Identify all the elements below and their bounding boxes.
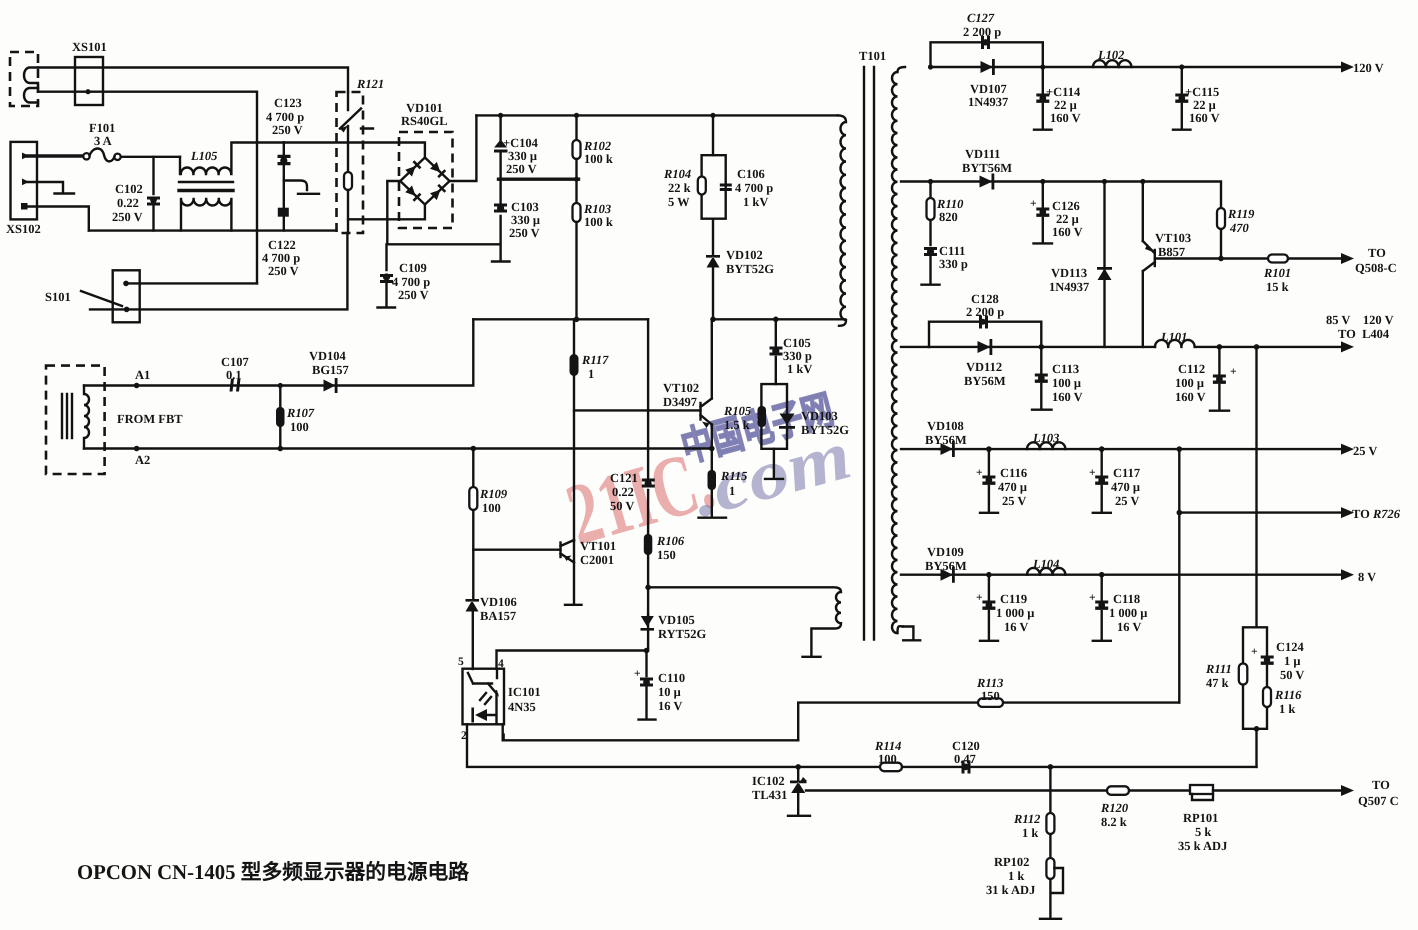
svg-text:1N4937: 1N4937 [1049,280,1089,294]
svg-text:C109: C109 [399,261,427,275]
svg-text:XS102: XS102 [6,222,41,236]
svg-text:8 V: 8 V [1358,570,1376,584]
svg-text:C106: C106 [737,167,765,181]
svg-text:C119: C119 [1000,592,1027,606]
svg-text:VD108: VD108 [927,419,964,433]
svg-text:0.47: 0.47 [954,752,976,766]
svg-text:C127: C127 [967,11,995,25]
svg-text:1 k: 1 k [1022,826,1038,840]
svg-text:+: + [1089,467,1096,479]
svg-text:1 μ: 1 μ [1284,654,1300,668]
svg-text:470 μ: 470 μ [1111,480,1140,494]
svg-text:VT101: VT101 [580,539,616,553]
svg-text:VD106: VD106 [480,595,517,609]
svg-text:VD111: VD111 [965,147,1000,161]
svg-text:R103: R103 [583,202,611,216]
svg-text:BYT56M: BYT56M [962,161,1012,175]
svg-text:330 p: 330 p [783,349,812,363]
svg-text:31 k ADJ: 31 k ADJ [986,883,1035,897]
svg-text:Q508-C: Q508-C [1355,261,1397,275]
svg-text:VD102: VD102 [726,248,763,262]
svg-text:L102: L102 [1097,48,1124,62]
svg-text:250 V: 250 V [272,123,303,137]
svg-text:50 V: 50 V [610,499,634,513]
svg-text:3 A: 3 A [94,134,112,148]
svg-text:D3497: D3497 [663,395,697,409]
svg-text:150: 150 [657,548,676,562]
svg-text:VD113: VD113 [1051,266,1087,280]
svg-text:C103: C103 [511,200,539,214]
svg-text:250 V: 250 V [268,264,299,278]
svg-text:BA157: BA157 [480,609,516,623]
svg-text:R119: R119 [1227,207,1255,221]
svg-text:VD109: VD109 [927,545,964,559]
svg-text:R101: R101 [1263,266,1291,280]
svg-text:4 700 p: 4 700 p [266,110,304,124]
svg-text:1 k: 1 k [1008,869,1024,883]
svg-text:820: 820 [939,210,958,224]
svg-text:1 000 μ: 1 000 μ [1109,606,1147,620]
svg-text:TO R726: TO R726 [1352,507,1401,521]
svg-text:OPCON CN-1405 型多频显示器的电源电路: OPCON CN-1405 型多频显示器的电源电路 [77,860,470,884]
svg-text:160 V: 160 V [1050,111,1081,125]
svg-text:R106: R106 [656,534,685,548]
svg-text:R102: R102 [583,139,611,153]
svg-text:R116: R116 [1274,688,1302,702]
svg-text:R110: R110 [936,197,964,211]
svg-text:+C114: +C114 [1046,85,1081,99]
svg-text:+C115: +C115 [1185,85,1219,99]
svg-text:C110: C110 [658,671,685,685]
svg-text:VT103: VT103 [1155,231,1191,245]
svg-text:A1: A1 [135,368,150,382]
svg-text:250 V: 250 V [509,226,540,240]
svg-text:35 k ADJ: 35 k ADJ [1178,839,1227,853]
svg-text:RP102: RP102 [994,855,1029,869]
svg-text:C113: C113 [1052,362,1079,376]
svg-text:C116: C116 [1000,466,1027,480]
svg-text:0.22: 0.22 [612,485,634,499]
svg-text:VD112: VD112 [966,360,1002,374]
svg-text:RYT52G: RYT52G [658,627,706,641]
svg-text:VD105: VD105 [658,613,695,627]
svg-text:250 V: 250 V [506,162,537,176]
svg-text:4 700 p: 4 700 p [392,275,430,289]
svg-text:15 k: 15 k [1266,280,1289,294]
svg-text:100: 100 [482,501,501,515]
svg-text:330 μ: 330 μ [511,213,540,227]
svg-text:100: 100 [878,752,897,766]
svg-text:2 200 p: 2 200 p [963,25,1001,39]
svg-text:150: 150 [981,689,1000,703]
svg-text:85 V 120 V: 85 V 120 V [1326,313,1394,327]
svg-text:50 V: 50 V [1280,668,1304,682]
svg-text:C102: C102 [115,182,143,196]
svg-text:R114: R114 [874,739,901,753]
svg-text:R109: R109 [479,487,508,501]
svg-text:RS40GL: RS40GL [401,114,448,128]
svg-text:1: 1 [729,484,735,498]
svg-text:25 V: 25 V [1353,444,1377,458]
svg-text:+: + [976,592,983,604]
svg-text:100 k: 100 k [584,215,613,229]
svg-text:C126: C126 [1052,199,1080,213]
svg-text:100 k: 100 k [584,152,613,166]
svg-text:1 kV: 1 kV [787,362,812,376]
svg-text:8.2 k: 8.2 k [1101,815,1127,829]
svg-text:BY56M: BY56M [964,374,1006,388]
svg-text:R121: R121 [356,77,384,91]
svg-text:1N4937: 1N4937 [968,95,1008,109]
svg-text:L101: L101 [1160,330,1187,344]
svg-text:C122: C122 [268,238,296,252]
svg-text:C124: C124 [1276,640,1305,654]
svg-text:C107: C107 [221,355,249,369]
svg-text:1 k: 1 k [1279,702,1295,716]
svg-text:L105: L105 [190,149,217,163]
svg-text:160 V: 160 V [1052,225,1083,239]
svg-text:TO: TO [1372,778,1390,792]
svg-text:C2001: C2001 [580,553,614,567]
svg-text:25 V: 25 V [1002,494,1026,508]
svg-text:BY56M: BY56M [925,433,967,447]
svg-text:VD104: VD104 [309,349,347,363]
svg-text:25 V: 25 V [1115,494,1139,508]
svg-text:5: 5 [458,656,464,668]
svg-text:C121: C121 [610,471,638,485]
svg-text:S101: S101 [45,290,71,304]
svg-text:1.5 k: 1.5 k [724,418,750,432]
svg-text:100: 100 [290,420,309,434]
svg-text:IC101: IC101 [508,685,541,699]
svg-text:B857: B857 [1158,245,1185,259]
svg-text:FROM FBT: FROM FBT [117,412,183,426]
svg-text:BYT52G: BYT52G [726,262,774,276]
svg-text:1 000 μ: 1 000 μ [996,606,1034,620]
svg-text:C112: C112 [1178,362,1205,376]
svg-text:100 μ: 100 μ [1052,376,1081,390]
svg-text:470 μ: 470 μ [998,480,1027,494]
svg-text:250 V: 250 V [398,288,429,302]
svg-text:22 μ: 22 μ [1193,98,1216,112]
svg-text:L103: L103 [1032,431,1059,445]
svg-text:5 W: 5 W [668,195,690,209]
svg-text:F101: F101 [89,121,115,135]
svg-text:16 V: 16 V [1117,620,1141,634]
svg-text:1: 1 [588,367,594,381]
svg-text:330 p: 330 p [939,257,968,271]
svg-text:22 k: 22 k [668,181,691,195]
svg-text:BG157: BG157 [312,363,349,377]
svg-text:R120: R120 [1100,801,1129,815]
svg-text:BY56M: BY56M [925,559,967,573]
svg-text:A2: A2 [135,453,150,467]
svg-text:47 k: 47 k [1206,676,1229,690]
svg-text:RP101: RP101 [1183,811,1218,825]
svg-text:470: 470 [1229,221,1250,235]
svg-text:C118: C118 [1113,592,1140,606]
svg-text:C117: C117 [1113,466,1140,480]
svg-text:VD107: VD107 [970,82,1007,96]
svg-text:0.22: 0.22 [117,196,139,210]
svg-text:Q507 C: Q507 C [1358,794,1399,808]
svg-text:+: + [1251,646,1258,658]
svg-text:TO: TO [1368,246,1386,260]
svg-text:4N35: 4N35 [508,700,536,714]
svg-text:BYT52G: BYT52G [801,423,849,437]
svg-text:VT102: VT102 [663,381,699,395]
svg-text:160 V: 160 V [1175,390,1206,404]
svg-text:T101: T101 [859,49,886,63]
svg-text:100 μ: 100 μ [1175,376,1204,390]
svg-text:VD103: VD103 [801,409,838,423]
svg-text:+: + [634,668,641,680]
svg-text:330 μ: 330 μ [508,149,537,163]
svg-text:22 μ: 22 μ [1056,212,1079,226]
svg-text:2 200 p: 2 200 p [966,305,1004,319]
svg-text:R105: R105 [723,404,751,418]
svg-text:R112: R112 [1013,812,1040,826]
svg-text:VD101: VD101 [406,101,443,115]
svg-text:TO L404: TO L404 [1338,327,1390,341]
svg-text:120 V: 120 V [1353,61,1384,75]
svg-text:4 700 p: 4 700 p [735,181,773,195]
svg-text:1 kV: 1 kV [743,195,768,209]
svg-text:R115: R115 [720,469,747,483]
svg-text:+: + [1030,198,1037,210]
svg-text:+: + [976,467,983,479]
svg-text:C123: C123 [274,96,302,110]
svg-text:R104: R104 [663,167,691,181]
svg-text:R111: R111 [1205,662,1232,676]
svg-text:R113: R113 [976,676,1003,690]
svg-text:+C104: +C104 [503,136,539,150]
svg-text:L104: L104 [1032,557,1059,571]
svg-text:+: + [1089,592,1096,604]
svg-text:+: + [1230,366,1237,378]
svg-text:22 μ: 22 μ [1054,98,1077,112]
svg-text:160 V: 160 V [1189,111,1220,125]
svg-text:250 V: 250 V [112,210,143,224]
svg-text:4 700 p: 4 700 p [262,251,300,265]
svg-text:0.1: 0.1 [226,368,242,382]
svg-text:16 V: 16 V [658,699,682,713]
svg-text:C105: C105 [783,336,811,350]
svg-text:4: 4 [498,658,504,670]
svg-text:C128: C128 [971,292,999,306]
svg-text:R117: R117 [581,353,609,367]
svg-text:TL431: TL431 [752,788,787,802]
svg-text:C111: C111 [939,244,965,258]
svg-text:16 V: 16 V [1004,620,1028,634]
svg-text:10 μ: 10 μ [658,685,681,699]
svg-text:R107: R107 [286,406,315,420]
svg-text:160 V: 160 V [1052,390,1083,404]
svg-text:IC102: IC102 [752,774,785,788]
svg-text:5 k: 5 k [1195,825,1211,839]
svg-text:XS101: XS101 [72,40,107,54]
svg-text:C120: C120 [952,739,980,753]
